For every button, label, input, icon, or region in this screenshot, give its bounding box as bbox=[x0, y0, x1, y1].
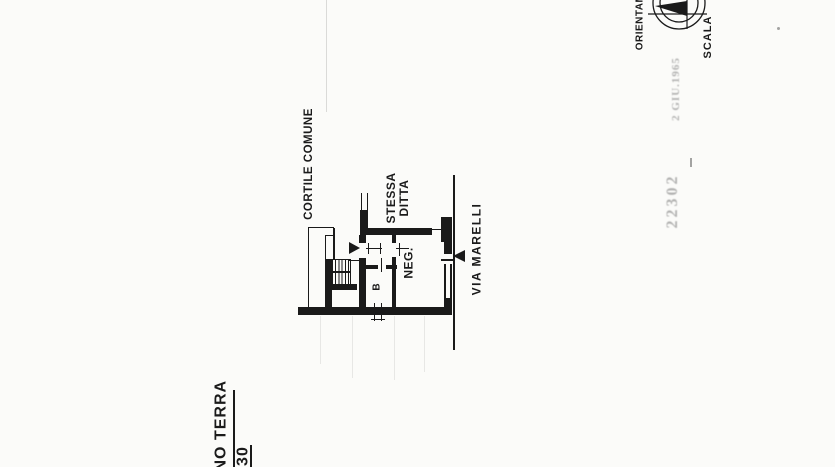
courtyard-label: CORTILE COMUNE bbox=[303, 108, 315, 220]
bath-door-tick bbox=[381, 258, 382, 272]
scan-dot-artifact bbox=[777, 27, 780, 30]
street-name-label: VIA MARELLI bbox=[471, 203, 484, 296]
staircase-hatch bbox=[331, 259, 351, 286]
floor-plan-drawing: CORTILE COMUNE STESSA DITTA NEG. B VIA M… bbox=[0, 0, 835, 467]
shop-window-line-outer bbox=[444, 264, 446, 298]
shop-window-line-inner bbox=[450, 264, 452, 298]
east-wall-upper bbox=[444, 242, 452, 254]
courtyard-inner-vertical bbox=[325, 236, 326, 260]
scale-label: SCALA bbox=[703, 16, 715, 59]
wall-face-line bbox=[333, 228, 335, 259]
south-opening-tick-bar bbox=[371, 319, 385, 320]
scan-streak-4 bbox=[424, 316, 425, 372]
entry-door-arrow-icon bbox=[349, 242, 360, 254]
bath-partition-left bbox=[366, 265, 378, 269]
stamp-speck bbox=[690, 158, 692, 167]
shop-room-label: NEG. bbox=[403, 247, 416, 278]
entry-door-jamb-2 bbox=[380, 243, 381, 254]
fold-line-artifact bbox=[326, 0, 327, 112]
courtyard-boundary-vertical bbox=[308, 228, 309, 307]
street-door-arrow-icon bbox=[453, 250, 465, 262]
shop-partition-lower bbox=[392, 257, 396, 307]
staircase-landing-line bbox=[332, 271, 350, 273]
bath-room-label: B bbox=[373, 283, 384, 290]
scanned-floor-plan-page: CORTILE COMUNE STESSA DITTA NEG. B VIA M… bbox=[0, 0, 835, 467]
floor-number-underline bbox=[250, 445, 252, 467]
north-wall bbox=[360, 228, 432, 235]
stamp-number: 22302 bbox=[664, 174, 682, 229]
stub-extension-line-left bbox=[361, 193, 362, 210]
adjacent-property-label-line2: DITTA bbox=[398, 172, 411, 223]
adjacent-property-label-line1: STESSA bbox=[385, 172, 398, 223]
street-edge-line bbox=[453, 175, 455, 350]
shop-door-jamb bbox=[399, 243, 400, 256]
scan-streak-2 bbox=[352, 316, 353, 378]
entry-wall-upper bbox=[359, 235, 366, 243]
stub-extension-line-right bbox=[367, 193, 368, 210]
scan-streak-1 bbox=[320, 316, 321, 364]
shop-partition-upper bbox=[392, 235, 396, 243]
scan-streak-3 bbox=[394, 316, 395, 380]
adjacent-property-label: STESSA DITTA bbox=[385, 172, 411, 223]
north-east-corner-wall bbox=[441, 217, 452, 242]
entry-door-jamb-1 bbox=[368, 243, 369, 254]
floor-caption: ANO TERRA bbox=[212, 380, 229, 467]
entry-wall-lower bbox=[359, 258, 366, 308]
stamp-date: 2 GIU.1965 bbox=[670, 57, 682, 121]
stair-door-tick bbox=[349, 260, 359, 261]
courtyard-boundary-horizontal bbox=[308, 227, 334, 228]
